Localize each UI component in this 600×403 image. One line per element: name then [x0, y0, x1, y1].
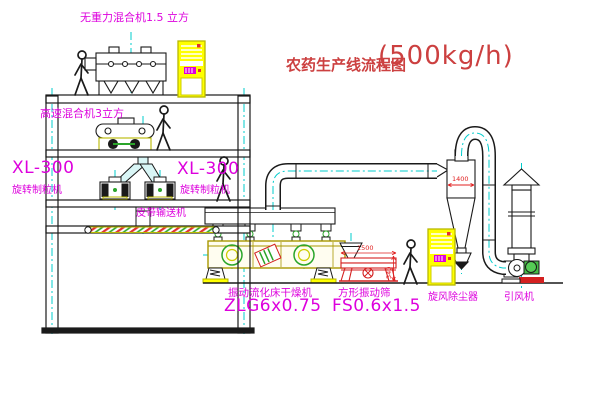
- hot-air-cabinet: [428, 229, 455, 285]
- label-granulator-left-name: 旋转制粒机: [12, 186, 62, 196]
- person-ground: [404, 240, 417, 284]
- person-top-floor: [75, 51, 88, 95]
- induced-draft-fan: [502, 260, 544, 284]
- fluid-bed-dryer: [203, 208, 345, 283]
- belt-conveyor: [85, 227, 219, 233]
- granulator-right: [145, 177, 175, 200]
- label-fan: 引风机: [504, 293, 534, 303]
- gravity-free-mixer: [85, 47, 166, 95]
- label-granulator-right-model: XL-300: [177, 161, 239, 178]
- diagram-capacity: (500kg/h): [378, 41, 514, 71]
- dimension-cyclone: 1400: [452, 176, 469, 183]
- high-speed-mixer: [96, 118, 154, 151]
- label-cyclone: 旋风除尘器: [428, 293, 478, 303]
- dryer-legs: [206, 268, 333, 279]
- person-mid-floor: [157, 106, 170, 150]
- label-granulator-right-name: 旋转制粒机: [180, 186, 230, 196]
- control-cabinet-top: [178, 41, 205, 97]
- flow-diagram-canvas: 农药生产线流程图 (500kg/h) 无重力混合机1.5 立方 高速混合机3立方…: [0, 0, 600, 403]
- dimension-screen-height: 540: [386, 267, 393, 279]
- label-dryer-model: ZLG6x0.75: [224, 298, 322, 315]
- dimension-screen-length: 1500: [357, 245, 374, 252]
- label-mixer-top: 无重力混合机1.5 立方: [80, 12, 189, 23]
- label-granulator-left-model: XL-300: [12, 160, 74, 177]
- exhaust-stack: [504, 169, 539, 262]
- label-mixer-mid: 高速混合机3立方: [40, 108, 124, 119]
- label-conveyor: 皮带输送机: [136, 209, 186, 219]
- label-screen-model: FS0.6x1.5: [332, 298, 421, 315]
- exhaust-duct: [265, 164, 437, 211]
